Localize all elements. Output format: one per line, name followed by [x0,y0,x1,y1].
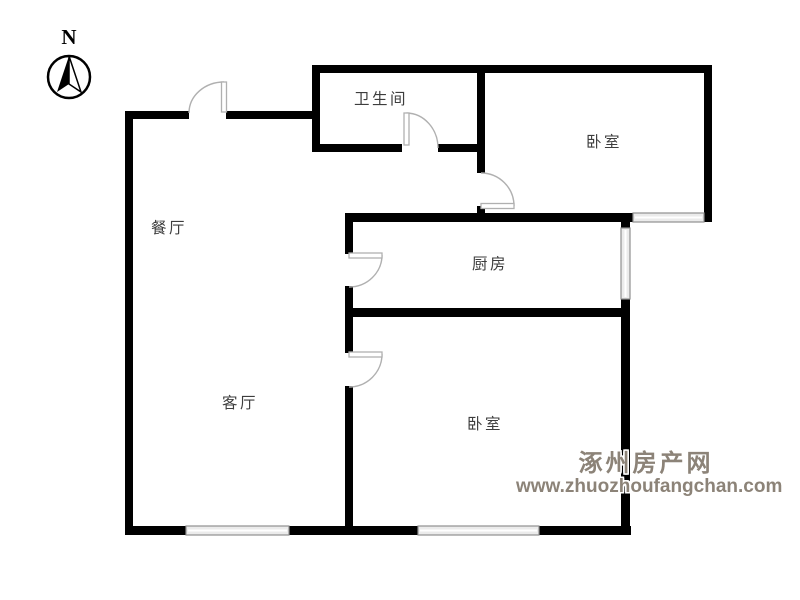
door-leaf [404,113,409,145]
wall-mid-horizontal [345,213,633,222]
door-leaf [222,82,227,112]
door-swing-arc [407,113,439,148]
wall-left-main [125,111,133,535]
compass-needle-left [57,56,69,92]
wall-kitchen-bottom [345,308,630,317]
room-label-bedroom-bottom: 卧室 [467,417,503,433]
watermark-site-name: 涿州房产网 [516,451,776,476]
door-bedroom-bottom [349,352,382,387]
compass-needle-right [69,56,81,92]
window-bedroom-top [633,213,704,222]
room-label-kitchen: 厨房 [472,257,508,273]
door-swing-arc [349,255,382,287]
door-kitchen [349,253,382,287]
wall-kitchen-left-upper [345,213,353,254]
floorplan-structure [0,0,800,600]
room-label-dining: 餐厅 [151,221,187,237]
north-compass-icon [48,56,90,98]
door-swing-arc [189,82,224,113]
room-label-bedroom-top: 卧室 [586,135,622,151]
door-leaf [349,352,382,357]
wall-bottom-right [539,526,631,535]
wall-bathroom-left [312,65,320,152]
room-label-living: 客厅 [222,396,258,412]
door-bedroom-top [481,173,514,209]
door-entrance [189,82,227,113]
window-bedroom-bottom [418,526,539,535]
wall-entry-top-right [226,111,312,119]
wall-kitchen-right-lower [621,299,630,535]
wall-bottom-left [125,526,186,535]
door-swing-arc [349,354,382,387]
window-kitchen [621,228,630,299]
window-living [186,526,289,535]
wall-bottom-middle [289,526,418,535]
door-swing-arc [481,173,514,206]
door-leaf [481,204,514,209]
wall-bathroom-bottom-left [312,144,402,152]
watermark: 涿州房产网 www.zhuozhoufangchan.com [516,451,776,497]
compass-north-label: N [55,27,83,48]
wall-top-main [312,65,712,73]
wall-hall-bedroom-divider [477,65,485,173]
wall-living-bedroom-lower [345,386,353,535]
wall-entry-top-left [125,111,189,119]
watermark-site-url: www.zhuozhoufangchan.com [516,477,776,497]
door-leaf [349,253,382,258]
door-bathroom [404,113,438,148]
wall-kitchen-right-upper [621,213,630,228]
floorplan-image: N 卫生间 卧室 餐厅 厨房 客厅 卧室 涿州房产网 www.zhuozhouf… [0,0,800,600]
room-label-bathroom: 卫生间 [354,92,408,108]
wall-living-bedroom-upper [345,308,353,353]
wall-right-main [704,65,712,222]
